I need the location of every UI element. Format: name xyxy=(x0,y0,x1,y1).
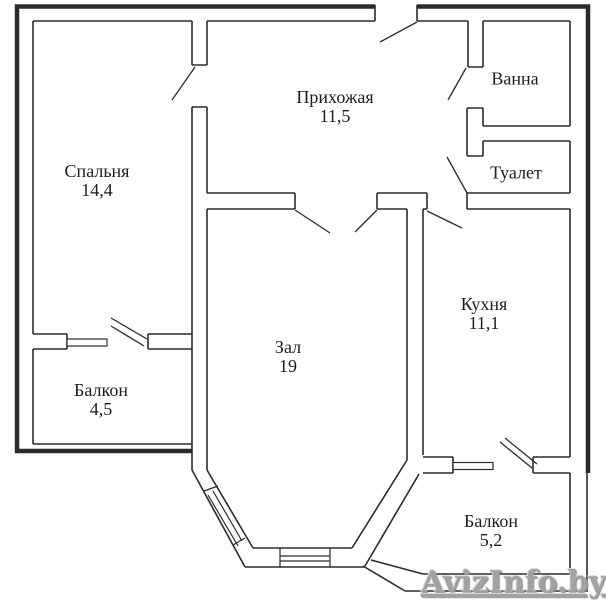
window-bay-diagonal xyxy=(204,486,245,546)
room-name: Спальня xyxy=(65,162,130,181)
room-label-kitchen: Кухня 11,1 xyxy=(461,295,508,333)
room-area: 11,1 xyxy=(461,314,508,333)
room-name: Балкон xyxy=(464,512,518,531)
door-livingroom-right-leaf xyxy=(355,210,377,232)
door-bedroom xyxy=(172,67,195,100)
watermark: AvizInfo.by xyxy=(421,568,606,598)
room-area: 4,5 xyxy=(74,400,128,419)
room-name: Ванна xyxy=(491,70,538,89)
window-kitchen-balcony xyxy=(453,463,493,470)
room-label-balcony-bottom: Балкон 5,2 xyxy=(464,512,518,550)
room-name: Прихожая xyxy=(296,88,373,107)
room-label-wc: Туалет xyxy=(490,164,542,183)
door-kitchen-balcony xyxy=(500,438,537,468)
door-bath xyxy=(448,68,466,100)
room-area: 11,5 xyxy=(296,107,373,126)
door-bedroom-balcony xyxy=(111,318,147,346)
room-label-livingroom: Зал 19 xyxy=(275,338,301,376)
window-bay-bottom xyxy=(280,548,330,567)
room-area: 5,2 xyxy=(464,531,518,550)
room-area: 19 xyxy=(275,357,301,376)
door-kitchen xyxy=(427,211,462,228)
room-area: 14,4 xyxy=(65,181,130,200)
door-wc xyxy=(447,157,467,193)
door-livingroom-left-leaf xyxy=(295,210,330,233)
room-name: Зал xyxy=(275,338,301,357)
room-label-balcony-left: Балкон 4,5 xyxy=(74,381,128,419)
floor-plan-canvas: Спальня 14,4 Прихожая 11,5 Ванна Туалет … xyxy=(0,0,606,600)
room-name: Туалет xyxy=(490,164,542,183)
room-name: Кухня xyxy=(461,295,508,314)
room-name: Балкон xyxy=(74,381,128,400)
room-label-bath: Ванна xyxy=(491,70,538,89)
door-entrance xyxy=(380,22,417,42)
window-bedroom-balcony xyxy=(67,339,107,346)
room-label-hallway: Прихожая 11,5 xyxy=(296,88,373,126)
room-label-bedroom: Спальня 14,4 xyxy=(65,162,130,200)
